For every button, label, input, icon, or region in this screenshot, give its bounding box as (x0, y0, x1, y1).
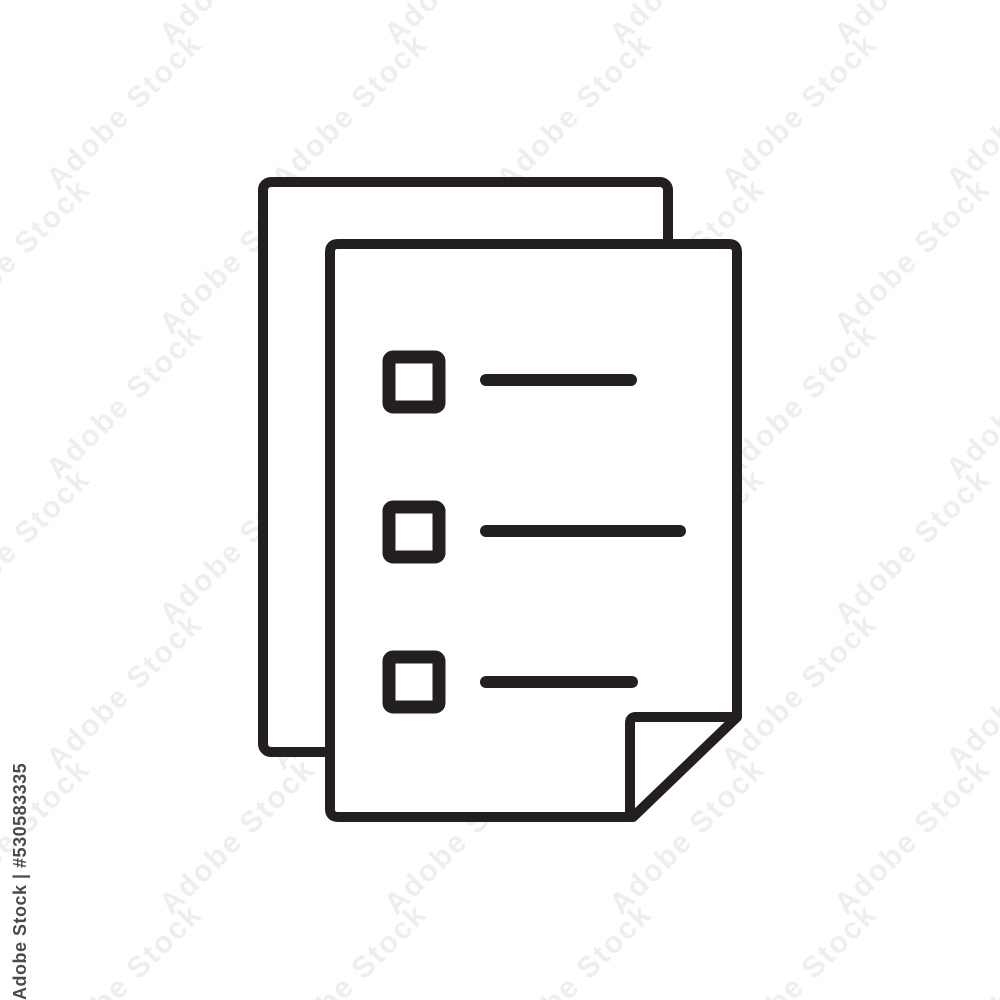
stock-id-watermark: Adobe Stock | #530583335 (10, 763, 31, 1000)
checklist-documents-icon (0, 0, 1000, 1000)
stock-preview-canvas: Adobe StockAdobe StockAdobe StockAdobe S… (0, 0, 1000, 1000)
